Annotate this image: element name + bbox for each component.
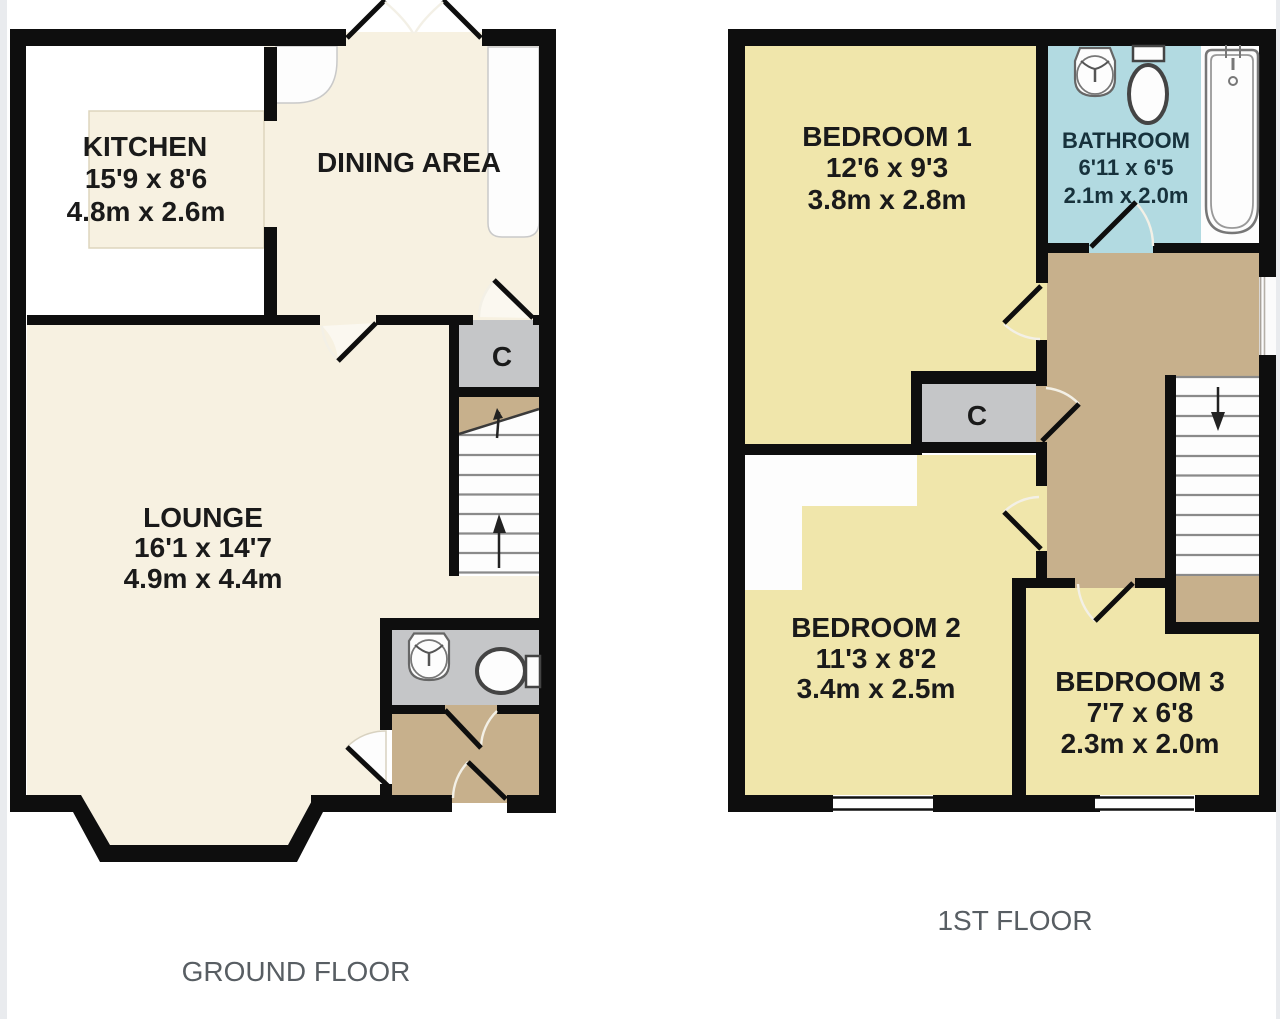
svg-text:12'6 x 9'3: 12'6 x 9'3: [826, 152, 948, 183]
svg-text:7'7 x 6'8: 7'7 x 6'8: [1087, 697, 1194, 728]
svg-text:LOUNGE: LOUNGE: [143, 502, 263, 533]
svg-text:3.4m x 2.5m: 3.4m x 2.5m: [797, 673, 956, 704]
svg-text:15'9 x 8'6: 15'9 x 8'6: [85, 163, 207, 194]
svg-text:GROUND FLOOR: GROUND FLOOR: [182, 956, 411, 987]
svg-text:BEDROOM 1: BEDROOM 1: [802, 121, 972, 152]
svg-text:BEDROOM 2: BEDROOM 2: [791, 612, 961, 643]
svg-text:BATHROOM: BATHROOM: [1062, 128, 1190, 153]
svg-text:16'1 x 14'7: 16'1 x 14'7: [134, 532, 272, 563]
svg-text:KITCHEN: KITCHEN: [83, 131, 207, 162]
svg-text:2.3m x 2.0m: 2.3m x 2.0m: [1061, 728, 1220, 759]
svg-text:3.8m x 2.8m: 3.8m x 2.8m: [808, 184, 967, 215]
svg-text:C: C: [492, 341, 512, 372]
svg-text:C: C: [967, 400, 987, 431]
svg-text:4.9m x 4.4m: 4.9m x 4.4m: [124, 563, 283, 594]
svg-text:6'11 x 6'5: 6'11 x 6'5: [1079, 155, 1174, 180]
svg-text:1ST FLOOR: 1ST FLOOR: [937, 905, 1092, 936]
svg-text:BEDROOM 3: BEDROOM 3: [1055, 666, 1225, 697]
svg-text:11'3 x 8'2: 11'3 x 8'2: [816, 643, 937, 674]
svg-text:DINING AREA: DINING AREA: [317, 147, 501, 178]
svg-text:4.8m x 2.6m: 4.8m x 2.6m: [67, 196, 226, 227]
svg-text:2.1m x 2.0m: 2.1m x 2.0m: [1064, 183, 1189, 208]
